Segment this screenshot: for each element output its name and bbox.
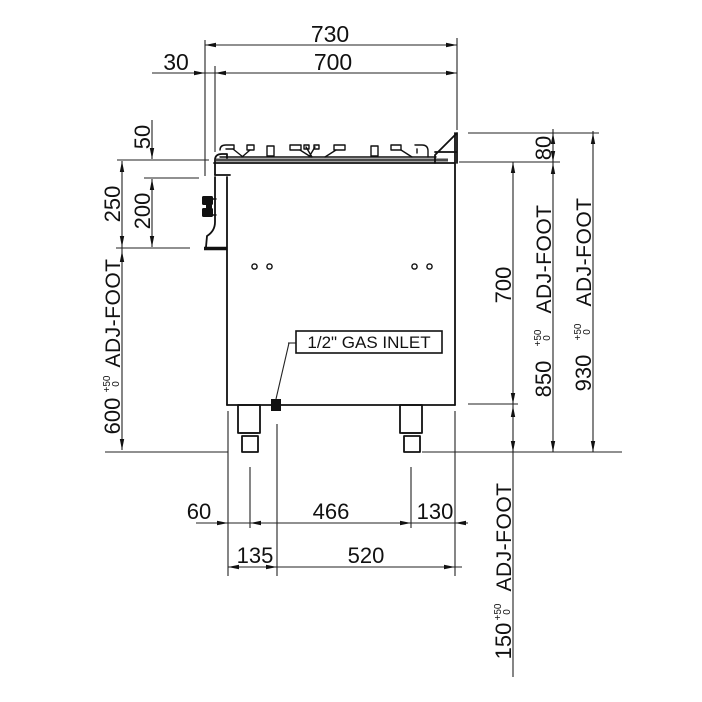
- dimension-lines: [122, 45, 593, 677]
- dim-depth-overall: 730: [311, 21, 349, 47]
- screw-hole: [252, 264, 257, 269]
- dim-leg-center-to-back: 130: [417, 499, 454, 524]
- tolerance-lower: 0: [111, 381, 122, 387]
- dim-worktop-to-panel-bottom: 250: [100, 186, 125, 223]
- dim-panel-bottom-to-floor: 600: [100, 398, 125, 435]
- dim-leg-centers: 466: [313, 499, 350, 524]
- technical-drawing-page: 1/2" GAS INLET 730 700 30 50 250 200 600…: [0, 0, 702, 702]
- gas-inlet-label: 1/2" GAS INLET: [307, 333, 430, 352]
- legs: [238, 405, 422, 452]
- tolerance-lower: 0: [502, 609, 513, 615]
- front-foot: [242, 436, 258, 452]
- adj-foot-label-150: ADJ-FOOT: [493, 483, 516, 592]
- screw-hole: [412, 264, 417, 269]
- control-panel: [202, 177, 227, 249]
- dim-gas-inlet-to-back: 520: [348, 543, 385, 568]
- screw-hole: [267, 264, 272, 269]
- adj-foot-label-850: ADJ-FOOT: [533, 205, 556, 314]
- gas-range-side-elevation: 1/2" GAS INLET 730 700 30 50 250 200 600…: [0, 0, 702, 702]
- adj-foot-label-930: ADJ-FOOT: [573, 198, 596, 307]
- dim-knob-offset: 30: [163, 49, 189, 75]
- dim-panel-height: 200: [130, 193, 155, 230]
- dim-pan-support-height: 50: [130, 125, 155, 149]
- dim-overall-height: 930: [571, 355, 596, 392]
- gas-inlet-marker: [271, 399, 281, 411]
- tolerance-lower: 0: [582, 329, 593, 335]
- cabinet-body: [227, 133, 455, 405]
- dim-worktop-height: 850: [531, 361, 556, 398]
- dim-upstand-height: 80: [531, 136, 556, 160]
- gas-inlet-callout: 1/2" GAS INLET: [276, 331, 442, 399]
- dim-front-to-gas-inlet: 135: [237, 543, 274, 568]
- pan-supports: [220, 145, 428, 157]
- tolerance-lower: 0: [542, 335, 553, 341]
- dim-body-height: 700: [491, 267, 516, 304]
- dim-foot-adjust: 150: [491, 623, 516, 660]
- dim-depth-body: 700: [314, 49, 352, 75]
- adj-foot-label-left: ADJ-FOOT: [102, 259, 125, 368]
- rear-leg: [400, 405, 422, 433]
- appliance-outline: [202, 133, 457, 452]
- front-leg: [238, 405, 260, 433]
- worktop: [214, 154, 455, 175]
- dim-front-to-leg-center: 60: [187, 499, 211, 524]
- rear-foot: [404, 436, 420, 452]
- screw-hole: [427, 264, 432, 269]
- arrowheads: [120, 43, 595, 569]
